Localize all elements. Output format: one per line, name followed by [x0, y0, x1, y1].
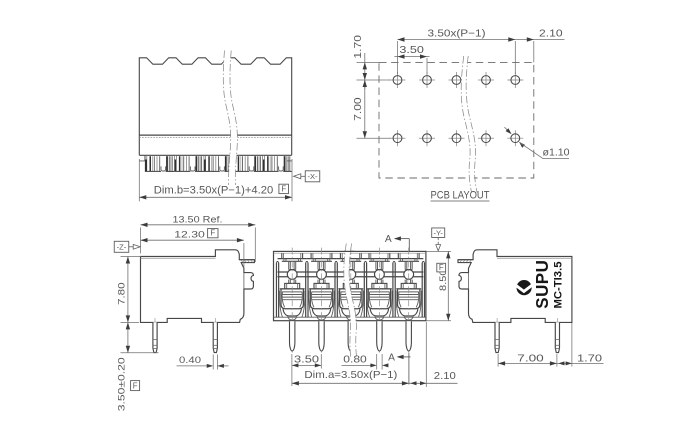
svg-text:3.50±0.20: 3.50±0.20 — [117, 357, 128, 411]
svg-text:F: F — [133, 382, 138, 391]
svg-text:F: F — [210, 229, 215, 238]
svg-text:F: F — [439, 263, 444, 272]
svg-text:3.50: 3.50 — [294, 355, 320, 366]
svg-text:12.30: 12.30 — [174, 229, 205, 240]
svg-text:A: A — [388, 352, 395, 363]
svg-text:MC-TI3.5: MC-TI3.5 — [553, 261, 565, 308]
svg-text:8.50: 8.50 — [438, 269, 449, 291]
svg-text:1.70: 1.70 — [577, 353, 603, 364]
svg-text:2.10: 2.10 — [434, 371, 456, 382]
svg-text:0.40: 0.40 — [179, 355, 201, 366]
svg-text:7.80: 7.80 — [116, 282, 127, 305]
svg-text:7.00: 7.00 — [517, 353, 544, 364]
svg-text:Dim.b=3.50x(P−1)+4.20: Dim.b=3.50x(P−1)+4.20 — [154, 185, 274, 197]
svg-text:13.50 Ref.: 13.50 Ref. — [173, 214, 223, 225]
svg-text:-X-: -X- — [307, 172, 318, 181]
svg-text:PCB LAYOUT: PCB LAYOUT — [431, 190, 490, 202]
svg-text:-Y-: -Y- — [433, 229, 443, 238]
svg-text:2.10: 2.10 — [539, 28, 563, 39]
svg-text:F: F — [281, 185, 286, 194]
svg-text:3.50x(P−1): 3.50x(P−1) — [428, 28, 486, 39]
svg-text:Dim.a=3.50x(P−1): Dim.a=3.50x(P−1) — [304, 369, 397, 381]
svg-text:-Z-: -Z- — [117, 243, 127, 252]
svg-text:SUPU: SUPU — [532, 260, 552, 309]
svg-text:1.70: 1.70 — [353, 35, 364, 59]
svg-text:3.50: 3.50 — [399, 45, 424, 56]
svg-text:A: A — [385, 234, 392, 245]
svg-text:ø1.10: ø1.10 — [543, 148, 570, 159]
svg-text:7.00: 7.00 — [353, 97, 364, 121]
svg-text:0.80: 0.80 — [343, 355, 367, 366]
